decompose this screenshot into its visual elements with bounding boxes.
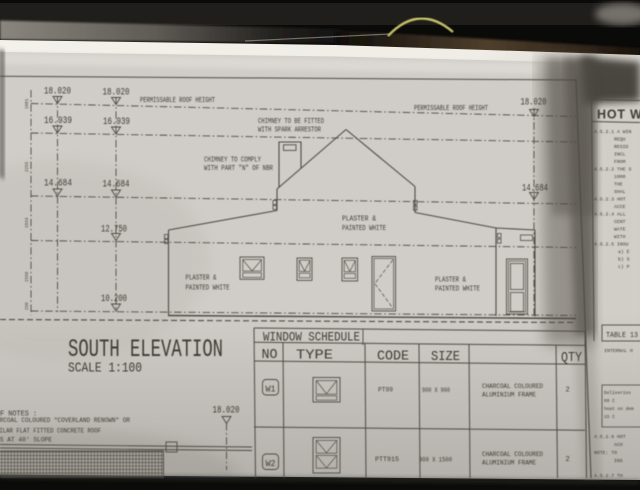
svg-text:QTY: QTY [561,350,582,366]
svg-text:4.5.2.5 INSU: 4.5.2.5 INSU [594,242,629,248]
svg-text:SCALE 1:100: SCALE 1:100 [68,361,142,377]
svg-text:WITH SPARK ARRESTOR: WITH SPARK ARRESTOR [258,127,322,135]
svg-text:18.020: 18.020 [521,98,547,109]
svg-text:CHIMNEY TO BE FITTED: CHIMNEY TO BE FITTED [258,118,324,126]
svg-text:CHARCOAL COLOURED: CHARCOAL COLOURED [482,383,543,390]
svg-text:c) P: c) P [618,264,630,270]
svg-text:900 X 900: 900 X 900 [422,387,450,394]
svg-text:4.5.2.1 A WIN: 4.5.2.1 A WIN [594,129,632,135]
svg-text:12.750: 12.750 [101,225,127,236]
svg-text:MILAR FLAT FITTED CONCRETE ROO: MILAR FLAT FITTED CONCRETE ROOF [0,428,101,435]
svg-text:b) S: b) S [618,257,630,263]
svg-text:PERMISSABLE ROOF HEIGHT: PERMISSABLE ROOF HEIGHT [414,105,488,113]
svg-text:SIZE: SIZE [431,349,460,365]
svg-text:ARCOAL COLOURED "COVERLAND REN: ARCOAL COLOURED "COVERLAND RENOWN" OR [0,417,130,424]
svg-text:WATE: WATE [614,227,626,233]
svg-text:TABLE 13: TABLE 13 [606,332,638,340]
svg-text:CODE: CODE [377,349,409,365]
svg-text:PAINTED WHITE: PAINTED WHITE [186,285,230,293]
svg-text:PT99: PT99 [378,387,393,394]
svg-text:W2: W2 [266,459,276,469]
svg-text:CHARCOAL COLOURED: CHARCOAL COLOURED [482,451,543,458]
svg-text:15 C: 15 C [604,414,615,420]
svg-text:1934: 1934 [25,217,30,228]
svg-text:PLASTER &: PLASTER & [435,277,467,285]
svg-text:FROM: FROM [614,159,626,165]
svg-text:1081: 1081 [25,98,30,109]
svg-text:INS: INS [614,458,623,464]
svg-text:NO: NO [262,347,278,363]
svg-text:4.5.2.4 ALL: 4.5.2.4 ALL [594,212,626,218]
svg-text:14.684: 14.684 [44,179,72,190]
svg-text:ACCE: ACCE [614,204,626,210]
svg-text:ES AT 40' SLOPE: ES AT 40' SLOPE [0,437,52,444]
svg-text:PLASTER &: PLASTER & [342,216,377,224]
svg-text:REQU: REQU [614,137,626,143]
svg-text:16.939: 16.939 [44,116,72,127]
svg-text:60 C: 60 C [604,398,615,404]
svg-text:CENT: CENT [614,219,626,225]
svg-text:4.5.2.2 THE S: 4.5.2.2 THE S [594,167,632,173]
svg-text:a) E: a) E [618,249,630,255]
svg-text:14.684: 14.684 [103,180,130,191]
svg-text:SHAL: SHAL [614,189,626,195]
svg-text:2550: 2550 [25,271,30,282]
svg-text:14.684: 14.684 [522,184,548,195]
svg-text:2: 2 [566,456,570,464]
svg-text:RESID: RESID [614,144,629,150]
svg-text:TYPE: TYPE [296,348,333,364]
svg-text:CHIMNEY TO COMPLY: CHIMNEY TO COMPLY [204,157,262,165]
svg-text:4.5.2.7 TH: 4.5.2.7 TH [594,473,623,479]
svg-text:1000: 1000 [614,174,626,180]
svg-text:PERMISSABLE ROOF HEIGHT: PERMISSABLE ROOF HEIGHT [140,97,215,105]
svg-text:W1: W1 [266,385,276,395]
svg-text:4.5.2.6 HOT: 4.5.2.6 HOT [594,434,626,440]
svg-text:16.939: 16.939 [103,117,130,128]
svg-text:heat on dem: heat on dem [604,406,634,412]
svg-text:THE: THE [614,182,623,188]
svg-text:900 X 1500: 900 X 1500 [419,456,452,463]
svg-text:18.020: 18.020 [44,87,71,98]
svg-text:4.5.2.3 HOT: 4.5.2.3 HOT [594,197,626,203]
svg-text:2255: 2255 [25,161,30,172]
svg-text:18.020: 18.020 [213,406,240,417]
svg-text:2: 2 [566,387,570,395]
svg-text:PLASTER &: PLASTER & [186,275,218,283]
svg-text:INTERNAL H: INTERNAL H [604,348,633,354]
svg-text:WITH: WITH [614,234,626,240]
svg-text:ALUMINIUM FRAME: ALUMINIUM FRAME [482,392,536,399]
svg-text:HOT WAT: HOT WAT [597,108,640,122]
svg-text:Deliveries: Deliveries [604,390,631,396]
svg-text:PAINTED WHITE: PAINTED WHITE [342,225,386,233]
svg-text:PTT915: PTT915 [375,456,399,463]
svg-text:ALUMINIUM FRAME: ALUMINIUM FRAME [482,460,536,467]
svg-text:NOTE: TO: NOTE: TO [594,450,617,456]
svg-text:PAINTED WHITE: PAINTED WHITE [435,286,480,294]
svg-text:WINDOW SCHEDULE: WINDOW SCHEDULE [263,330,360,345]
svg-text:INCL: INCL [614,152,626,158]
svg-text:ACH: ACH [614,442,623,448]
svg-text:18.020: 18.020 [103,88,130,99]
svg-text:WITH PART "N" OF NBR: WITH PART "N" OF NBR [204,165,274,173]
svg-text:10.200: 10.200 [101,294,127,305]
svg-text:250: 250 [25,302,30,310]
